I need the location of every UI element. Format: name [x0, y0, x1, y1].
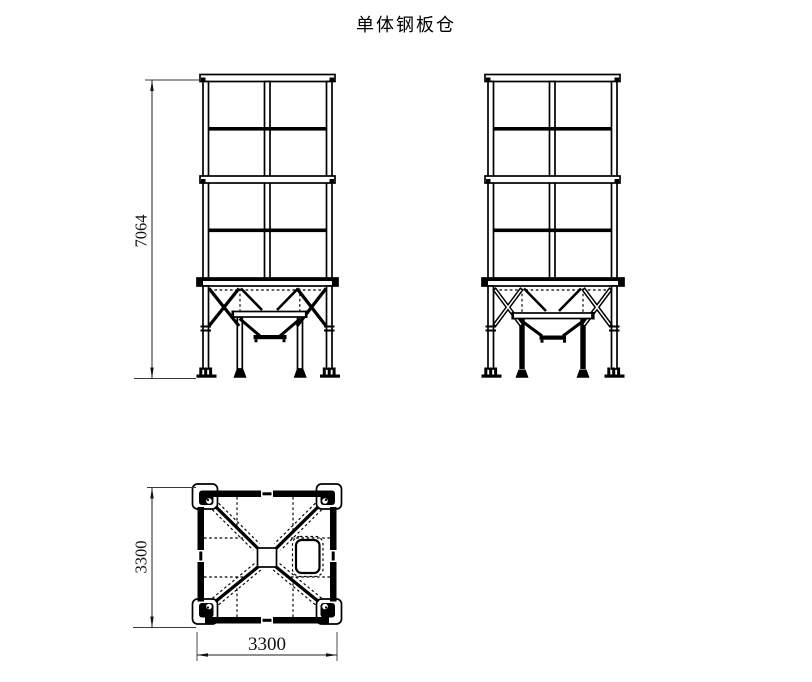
plan-view: 3300 3300: [132, 484, 342, 661]
side-elevation-view: [482, 75, 625, 378]
dimension-text-depth: 3300: [132, 541, 151, 574]
support-legs: [486, 286, 620, 369]
front-elevation-view: 7064: [132, 75, 341, 379]
dimension-text-height: 7064: [132, 215, 151, 248]
arrowhead-right-icon: [326, 653, 337, 656]
arrowhead-up-icon: [150, 488, 153, 499]
arrowhead-up-icon: [150, 80, 153, 91]
dimension-width-3300: 3300: [197, 632, 337, 661]
drawing-title: 单体钢板仓: [356, 15, 456, 35]
base-feet: [482, 368, 625, 378]
dimension-depth-3300: 3300: [132, 488, 197, 628]
access-manhole: [293, 537, 324, 577]
arrowhead-left-icon: [197, 653, 208, 656]
base-feet: [197, 368, 341, 378]
drawing-sheet: 单体钢板仓: [0, 0, 812, 682]
dimension-height-7064: 7064: [132, 80, 202, 379]
cross-bracing: [494, 289, 611, 327]
technical-drawing-canvas: 单体钢板仓: [0, 0, 812, 682]
arrowhead-down-icon: [150, 617, 153, 628]
arrowhead-down-icon: [150, 368, 153, 379]
cross-bracing: [209, 289, 326, 327]
support-legs: [201, 286, 335, 369]
platform-beam: [197, 278, 338, 290]
outlet-opening: [258, 548, 277, 567]
platform-beam: [482, 278, 624, 290]
dimension-text-width: 3300: [248, 634, 286, 655]
